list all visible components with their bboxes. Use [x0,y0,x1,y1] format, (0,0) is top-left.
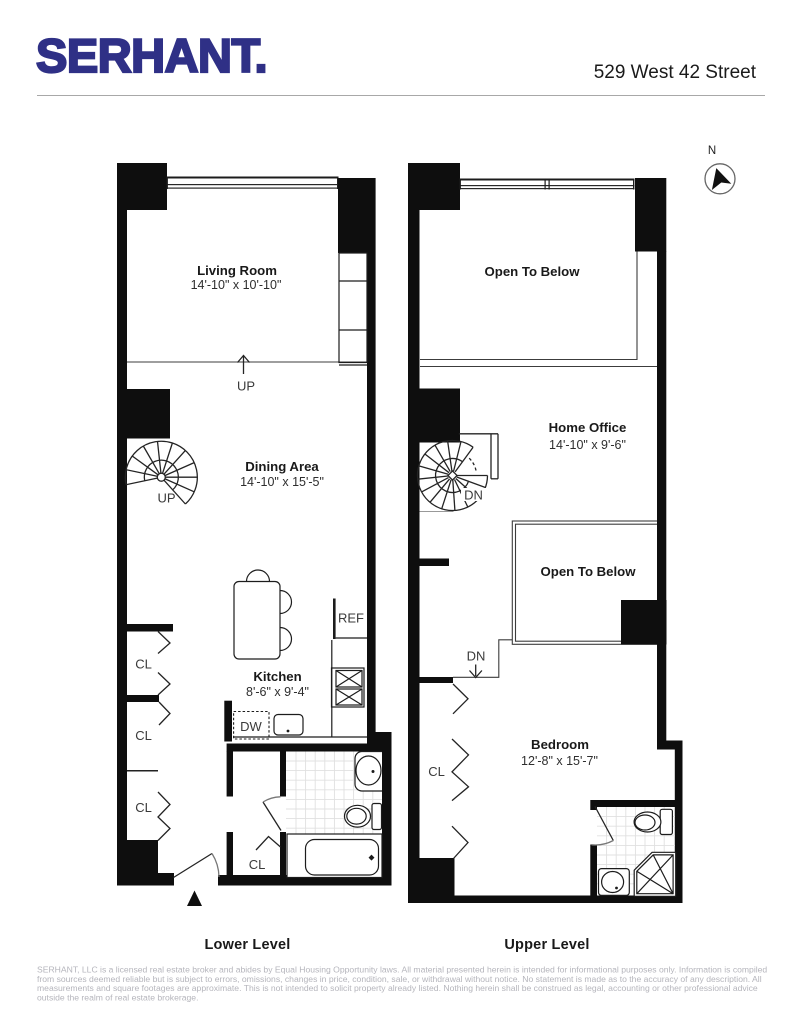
svg-text:14'-10" x 9'-6": 14'-10" x 9'-6" [549,438,626,452]
svg-text:CL: CL [135,657,152,672]
svg-text:14'-10" x 15'-5": 14'-10" x 15'-5" [240,475,324,489]
svg-text:Dining Area: Dining Area [245,459,319,474]
svg-text:12'-8" x 15'-7": 12'-8" x 15'-7" [521,754,598,768]
svg-text:DN: DN [464,488,483,503]
svg-text:UP: UP [157,491,175,506]
svg-text:Open To Below: Open To Below [541,564,637,579]
svg-text:outside the realm of real esta: outside the realm of real estate brokera… [37,992,198,1002]
svg-text:SERHANT.: SERHANT. [36,29,267,82]
svg-text:CL: CL [249,857,266,872]
svg-text:Bedroom: Bedroom [531,737,589,752]
svg-text:Home Office: Home Office [549,420,627,435]
svg-text:Living Room: Living Room [197,263,277,278]
svg-text:UP: UP [237,379,255,394]
svg-text:CL: CL [428,764,445,779]
svg-text:CL: CL [135,800,152,815]
svg-text:Kitchen: Kitchen [253,669,301,684]
svg-text:CL: CL [135,728,152,743]
svg-text:14'-10" x 10'-10": 14'-10" x 10'-10" [191,278,282,292]
svg-text:Lower Level: Lower Level [204,937,290,953]
svg-text:REF: REF [338,611,364,626]
svg-text:N: N [708,145,716,157]
svg-text:DW: DW [240,719,262,734]
svg-text:DN: DN [467,649,486,664]
svg-text:529 West 42 Street: 529 West 42 Street [594,62,757,83]
svg-text:Upper Level: Upper Level [504,937,589,953]
svg-text:Open To Below: Open To Below [485,264,581,279]
svg-text:8'-6" x 9'-4": 8'-6" x 9'-4" [246,685,309,699]
